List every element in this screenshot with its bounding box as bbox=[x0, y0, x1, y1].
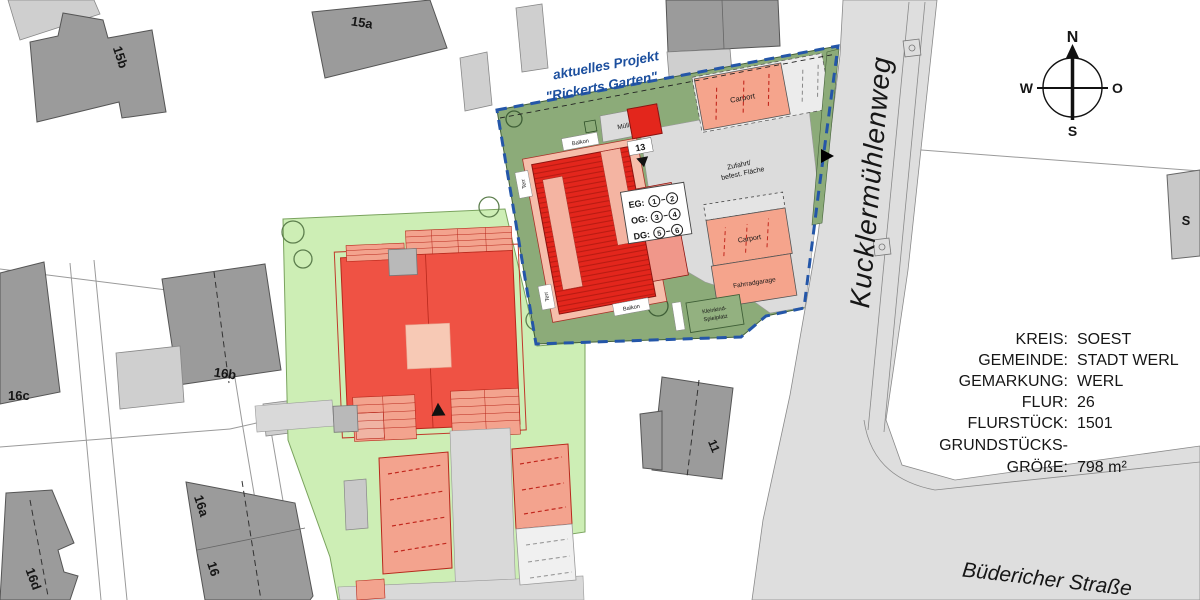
street-lamp-symbol bbox=[903, 39, 921, 57]
new-building-annex bbox=[627, 104, 662, 139]
info-label: GEMARKUNG: bbox=[959, 373, 1068, 390]
info-value: SOEST bbox=[1077, 331, 1131, 348]
stairwell-west bbox=[333, 405, 358, 432]
info-value: 798 m² bbox=[1077, 459, 1127, 476]
stairwell-north bbox=[388, 249, 417, 276]
building-16b-garage bbox=[116, 346, 184, 409]
driveway bbox=[450, 428, 516, 600]
building-16c-label: 16c bbox=[8, 388, 30, 403]
info-label: GEMEINDE: bbox=[978, 352, 1068, 369]
building-16b-label: 16b bbox=[213, 365, 237, 383]
info-value: WERL bbox=[1077, 373, 1123, 390]
parking-strip-west bbox=[379, 452, 452, 574]
site-plan-page: 15b 15a 16c 16b 16a 16 16d 11 S bbox=[0, 0, 1200, 600]
info-value: STADT WERL bbox=[1077, 352, 1179, 369]
info-label: GRUNDSTÜCKS- bbox=[939, 436, 1068, 454]
compass-s-label: S bbox=[1068, 123, 1077, 139]
carport-east-group: Carport Fahrradgarage bbox=[702, 192, 799, 308]
site-plan-svg: 15b 15a 16c 16b 16a 16 16d 11 S bbox=[0, 0, 1200, 600]
info-label: KREIS: bbox=[1016, 331, 1068, 348]
building-small-gray-a bbox=[460, 52, 492, 111]
building-small-gray-b bbox=[516, 4, 548, 72]
info-value: 1501 bbox=[1077, 415, 1113, 432]
atrium bbox=[406, 323, 452, 369]
shed bbox=[344, 479, 368, 530]
building-11-footprint bbox=[652, 377, 733, 479]
compass-n-label: N bbox=[1067, 29, 1079, 46]
info-value: 26 bbox=[1077, 394, 1095, 411]
info-label: FLURSTÜCK: bbox=[968, 414, 1068, 432]
existing-building bbox=[326, 226, 527, 442]
hedge-box bbox=[584, 120, 597, 133]
building-11-annex bbox=[640, 411, 662, 470]
compass-w-label: W bbox=[1020, 80, 1034, 96]
info-label: GRÖßE: bbox=[1007, 458, 1068, 476]
parking-south-patch bbox=[356, 579, 385, 600]
info-label: FLUR: bbox=[1022, 394, 1068, 411]
building-s-label: S bbox=[1181, 213, 1191, 229]
floor-annotation: EG: 1 2 OG: 3 4 DG: 5 6 bbox=[620, 182, 691, 243]
west-entry-path bbox=[255, 400, 334, 432]
house-number-label: 13 bbox=[635, 142, 647, 154]
parking-strip-east bbox=[512, 444, 572, 529]
compass-o-label: O bbox=[1112, 80, 1123, 96]
